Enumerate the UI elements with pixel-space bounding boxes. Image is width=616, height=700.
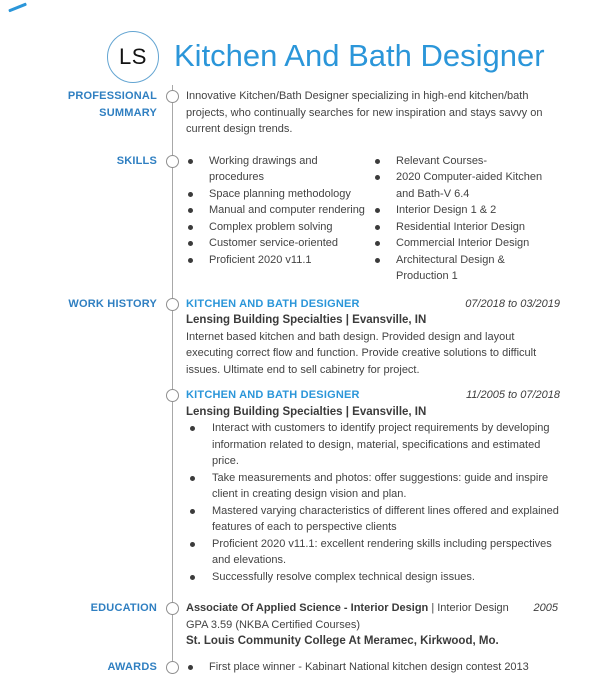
skill-item-label: Commercial Interior Design	[396, 235, 529, 252]
education-entry: 2005 Associate Of Applied Science - Inte…	[186, 600, 560, 650]
skills-column-1: Working drawings and procedures Space pl…	[186, 153, 373, 285]
content-cell: First place winner - Kabinart National k…	[186, 659, 560, 676]
section-professional-summary: PROFESSIONAL SUMMARY Innovative Kitchen/…	[0, 88, 616, 138]
education-year: 2005	[534, 600, 558, 617]
job-header: KITCHEN AND BATH DESIGNER 11/2005 to 07/…	[186, 387, 560, 404]
resume-sections: PROFESSIONAL SUMMARY Innovative Kitchen/…	[0, 88, 616, 676]
job-dates: 07/2018 to 03/2019	[465, 296, 560, 313]
skill-item: 2020 Computer-aided Kitchen and Bath-V 6…	[373, 169, 560, 202]
section-label-work-history: WORK HISTORY	[52, 296, 157, 313]
awards-list: First place winner - Kabinart National k…	[186, 659, 560, 676]
summary-text: Innovative Kitchen/Bath Designer special…	[186, 88, 560, 138]
skill-item: Complex problem solving	[186, 219, 373, 236]
bullet-icon	[188, 665, 193, 670]
award-text: First place winner - Kabinart National k…	[209, 659, 529, 676]
skill-item: Working drawings and procedures	[186, 153, 373, 186]
corner-mark-decoration	[8, 3, 27, 12]
content-cell: KITCHEN AND BATH DESIGNER 11/2005 to 07/…	[186, 387, 560, 585]
bullet-icon	[188, 225, 193, 230]
timeline-marker-icon	[166, 602, 179, 615]
award-item: First place winner - Kabinart National k…	[186, 659, 560, 676]
education-degree-line: Associate Of Applied Science - Interior …	[186, 600, 560, 633]
skill-item-label: Residential Interior Design	[396, 219, 525, 236]
marker-cell	[157, 387, 186, 403]
skills-column-2: Relevant Courses- 2020 Computer-aided Ki…	[373, 153, 560, 285]
bullet-icon	[188, 159, 193, 164]
marker-cell	[157, 153, 186, 169]
job-bullet-text: Successfully resolve complex technical d…	[212, 569, 475, 586]
marker-cell	[157, 659, 186, 675]
avatar: LS	[107, 31, 159, 83]
section-work-history: WORK HISTORY KITCHEN AND BATH DESIGNER 0…	[0, 296, 616, 379]
bullet-icon	[188, 208, 193, 213]
job-bullet-text: Interact with customers to identify proj…	[212, 420, 560, 470]
page-title: Kitchen And Bath Designer	[174, 36, 545, 76]
section-label-awards: AWARDS	[52, 659, 157, 676]
job-description: Internet based kitchen and bath design. …	[186, 329, 560, 379]
job-bullet-text: Mastered varying characteristics of diff…	[212, 503, 560, 536]
skill-item: Commercial Interior Design	[373, 235, 560, 252]
skill-item-label: Complex problem solving	[209, 219, 333, 236]
job-bullet-list: Interact with customers to identify proj…	[186, 420, 560, 585]
job-dates: 11/2005 to 07/2018	[466, 387, 560, 404]
timeline-marker-icon	[166, 389, 179, 402]
bullet-icon	[188, 241, 193, 246]
job-bullet-text: Proficient 2020 v11.1: excellent renderi…	[212, 536, 560, 569]
content-cell: Innovative Kitchen/Bath Designer special…	[186, 88, 560, 138]
job-entry-1: KITCHEN AND BATH DESIGNER 07/2018 to 03/…	[186, 296, 560, 379]
skill-item: Space planning methodology	[186, 186, 373, 203]
bullet-icon	[375, 241, 380, 246]
skill-item-label: Relevant Courses-	[396, 153, 487, 170]
job-title: KITCHEN AND BATH DESIGNER	[186, 387, 360, 404]
skill-item-label: Working drawings and procedures	[209, 153, 373, 186]
job-bullet-item: Successfully resolve complex technical d…	[186, 569, 560, 586]
job-header: KITCHEN AND BATH DESIGNER 07/2018 to 03/…	[186, 296, 560, 313]
section-work-history-job-2: KITCHEN AND BATH DESIGNER 11/2005 to 07/…	[0, 387, 616, 585]
skill-item: Residential Interior Design	[373, 219, 560, 236]
skill-item-label: 2020 Computer-aided Kitchen and Bath-V 6…	[396, 169, 560, 202]
job-company: Lensing Building Specialties | Evansvill…	[186, 404, 560, 421]
bullet-icon	[375, 258, 380, 263]
marker-cell	[157, 600, 186, 616]
skill-item-label: Manual and computer rendering	[209, 202, 365, 219]
content-cell: Working drawings and procedures Space pl…	[186, 153, 560, 285]
job-entry-2: KITCHEN AND BATH DESIGNER 11/2005 to 07/…	[186, 387, 560, 585]
timeline-marker-icon	[166, 298, 179, 311]
bullet-icon	[188, 192, 193, 197]
skill-item-label: Architectural Design & Production 1	[396, 252, 560, 285]
skill-item-label: Interior Design 1 & 2	[396, 202, 496, 219]
bullet-icon	[375, 225, 380, 230]
section-label-skills: SKILLS	[52, 153, 157, 170]
job-bullet-item: Proficient 2020 v11.1: excellent renderi…	[186, 536, 560, 569]
bullet-icon	[375, 175, 380, 180]
skill-item-label: Space planning methodology	[209, 186, 351, 203]
skill-item: Manual and computer rendering	[186, 202, 373, 219]
section-label-education: EDUCATION	[52, 600, 157, 617]
content-cell: KITCHEN AND BATH DESIGNER 07/2018 to 03/…	[186, 296, 560, 379]
skills-columns: Working drawings and procedures Space pl…	[186, 153, 560, 285]
timeline-marker-icon	[166, 90, 179, 103]
label-cell: AWARDS	[0, 659, 157, 676]
bullet-icon	[375, 208, 380, 213]
content-cell: 2005 Associate Of Applied Science - Inte…	[186, 600, 560, 650]
marker-cell	[157, 88, 186, 104]
skill-item: Interior Design 1 & 2	[373, 202, 560, 219]
timeline-marker-icon	[166, 661, 179, 674]
bullet-icon	[190, 542, 195, 547]
label-cell: SKILLS	[0, 153, 157, 170]
job-bullet-text: Take measurements and photos: offer sugg…	[212, 470, 560, 503]
bullet-icon	[190, 476, 195, 481]
marker-cell	[157, 296, 186, 312]
skill-item-label: Customer service-oriented	[209, 235, 338, 252]
skill-item: Customer service-oriented	[186, 235, 373, 252]
bullet-icon	[190, 575, 195, 580]
label-cell: PROFESSIONAL SUMMARY	[0, 88, 157, 122]
section-label-professional-summary: PROFESSIONAL SUMMARY	[52, 88, 157, 122]
section-education: EDUCATION 2005 Associate Of Applied Scie…	[0, 600, 616, 650]
job-bullet-item: Take measurements and photos: offer sugg…	[186, 470, 560, 503]
label-cell: EDUCATION	[0, 600, 157, 617]
job-company: Lensing Building Specialties | Evansvill…	[186, 312, 560, 329]
education-school: St. Louis Community College At Meramec, …	[186, 633, 560, 650]
section-skills: SKILLS Working drawings and procedures	[0, 153, 616, 285]
skill-item-label: Proficient 2020 v11.1	[209, 252, 312, 269]
job-bullet-item: Interact with customers to identify proj…	[186, 420, 560, 470]
bullet-icon	[375, 159, 380, 164]
label-cell: WORK HISTORY	[0, 296, 157, 313]
timeline-marker-icon	[166, 155, 179, 168]
skill-item: Proficient 2020 v11.1	[186, 252, 373, 269]
avatar-initials: LS	[119, 49, 147, 66]
skill-item: Relevant Courses-	[373, 153, 560, 170]
education-degree: Associate Of Applied Science - Interior …	[186, 602, 428, 614]
bullet-icon	[190, 426, 195, 431]
skill-item: Architectural Design & Production 1	[373, 252, 560, 285]
job-bullet-item: Mastered varying characteristics of diff…	[186, 503, 560, 536]
bullet-icon	[190, 509, 195, 514]
job-title: KITCHEN AND BATH DESIGNER	[186, 296, 360, 313]
bullet-icon	[188, 258, 193, 263]
section-awards: AWARDS First place winner - Kabinart Nat…	[0, 659, 616, 676]
